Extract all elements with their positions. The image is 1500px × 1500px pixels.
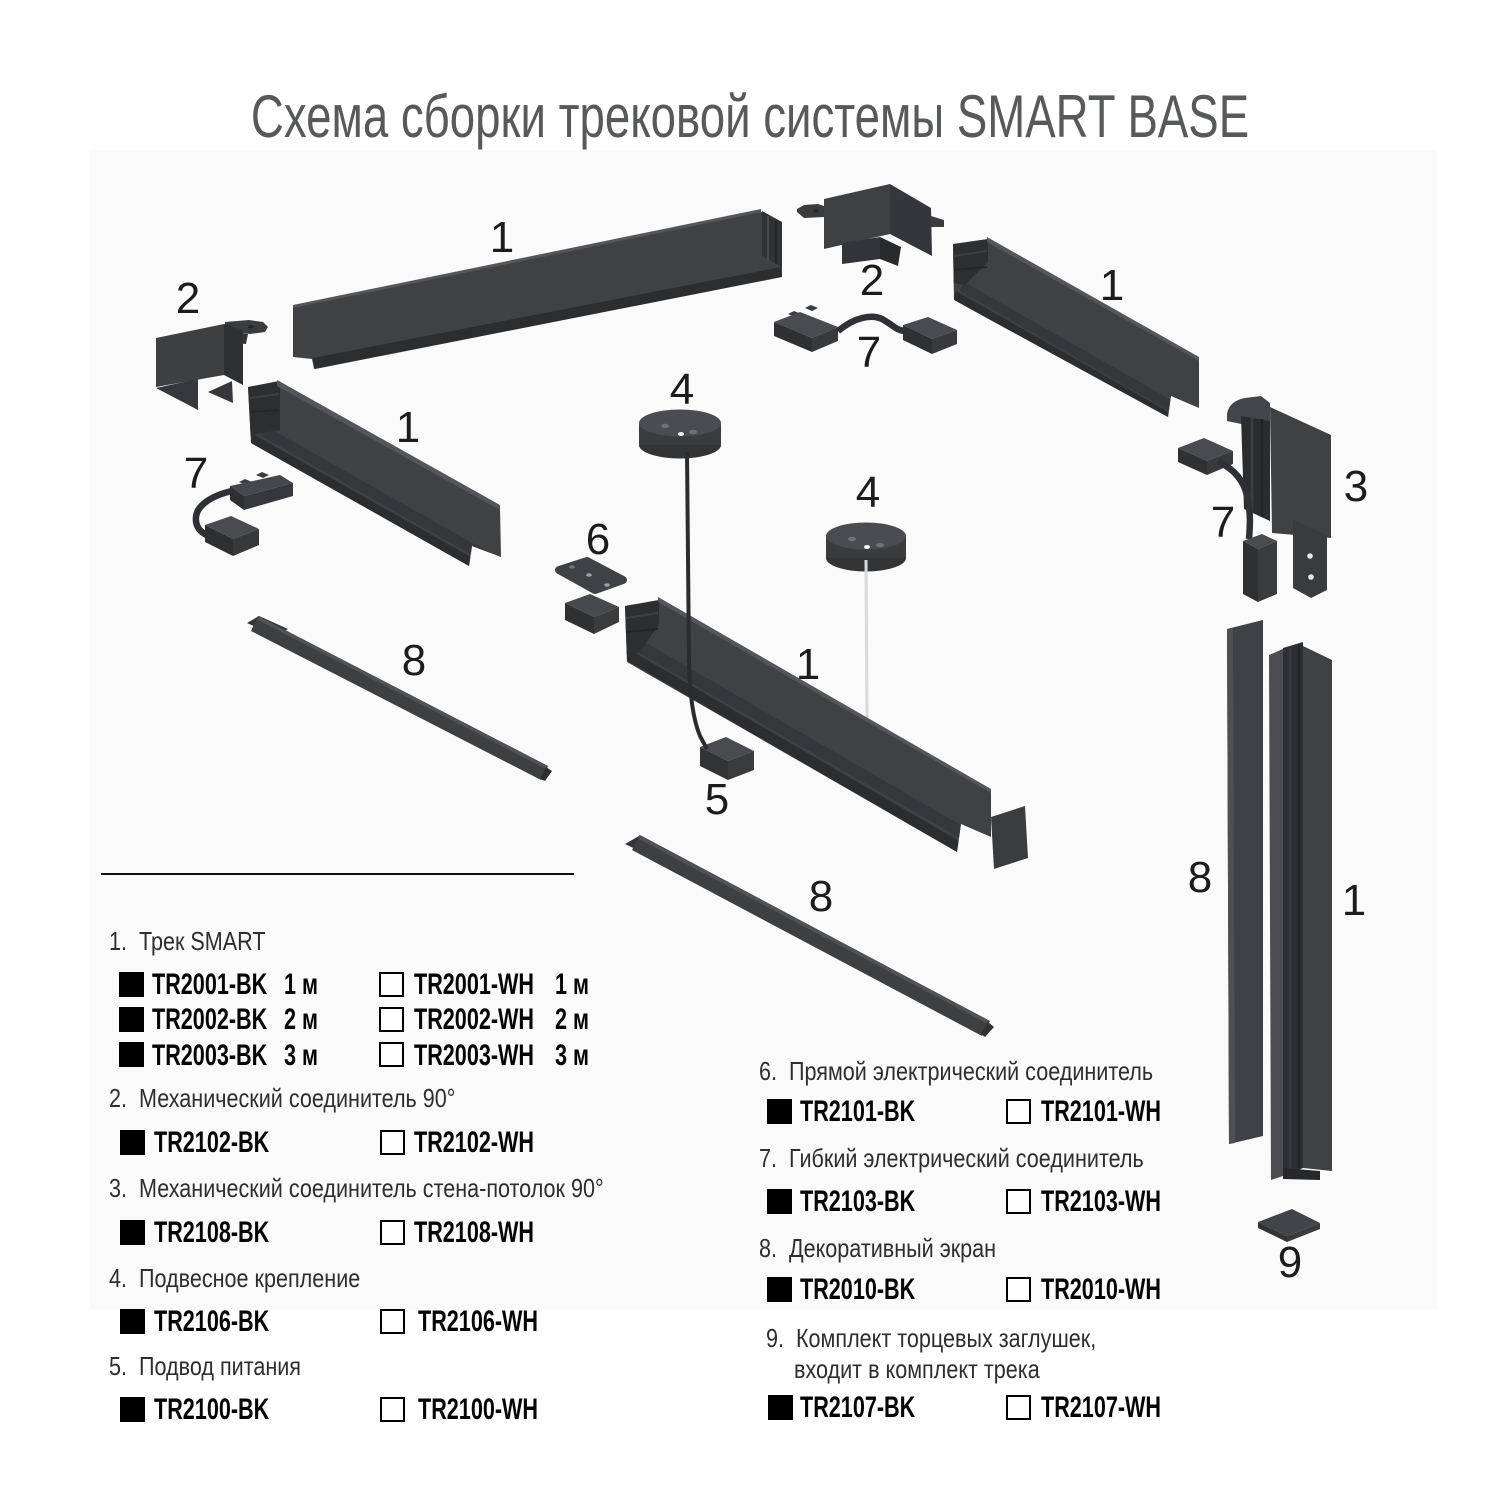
svg-text:7: 7: [184, 449, 208, 498]
svg-text:8: 8: [809, 872, 833, 921]
svg-text:1: 1: [490, 213, 514, 262]
svg-text:2: 2: [860, 256, 884, 305]
svg-text:8: 8: [402, 636, 426, 685]
svg-text:7: 7: [1211, 498, 1235, 547]
svg-text:6: 6: [586, 515, 610, 564]
svg-text:3: 3: [1344, 462, 1368, 511]
svg-text:9: 9: [1278, 1238, 1302, 1287]
svg-text:5: 5: [705, 775, 729, 824]
svg-text:1: 1: [1342, 876, 1366, 925]
svg-text:8: 8: [1188, 853, 1212, 902]
svg-text:1: 1: [796, 640, 820, 689]
svg-text:4: 4: [856, 468, 880, 517]
svg-text:2: 2: [176, 274, 200, 323]
svg-text:4: 4: [670, 365, 694, 414]
svg-text:1: 1: [1100, 261, 1124, 310]
svg-text:1: 1: [396, 403, 420, 452]
svg-text:7: 7: [857, 328, 881, 377]
